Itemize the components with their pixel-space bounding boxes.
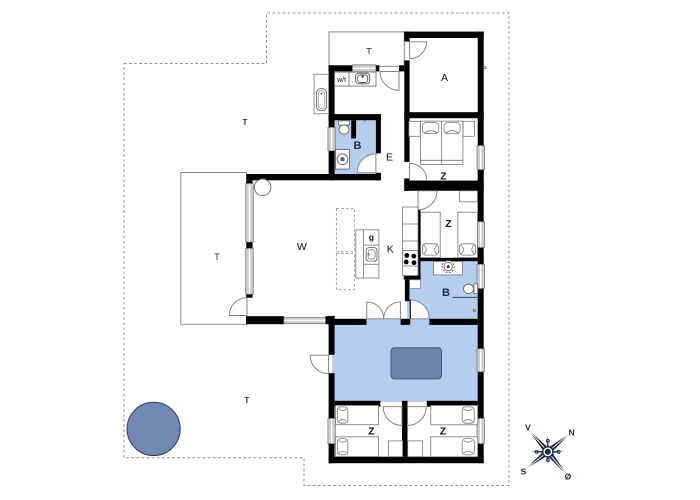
svg-text:Z: Z bbox=[368, 425, 375, 437]
svg-text:V: V bbox=[525, 422, 531, 432]
svg-text:K: K bbox=[387, 244, 394, 256]
svg-text:A: A bbox=[441, 72, 448, 84]
svg-text:T: T bbox=[214, 252, 220, 262]
svg-text:B: B bbox=[442, 287, 450, 299]
svg-text:T: T bbox=[244, 396, 249, 405]
svg-text:T: T bbox=[242, 118, 247, 127]
svg-text:W: W bbox=[297, 241, 307, 253]
svg-text:S: S bbox=[521, 466, 527, 476]
svg-text:B: B bbox=[354, 140, 362, 152]
svg-text:N: N bbox=[569, 427, 575, 437]
svg-text:Ø: Ø bbox=[565, 472, 572, 482]
svg-text:Z: Z bbox=[440, 171, 447, 183]
svg-text:T: T bbox=[366, 47, 372, 58]
svg-text:Z: Z bbox=[445, 218, 452, 230]
svg-text:g: g bbox=[369, 232, 374, 242]
svg-text:w/t: w/t bbox=[336, 77, 346, 84]
svg-text:E: E bbox=[386, 152, 393, 164]
svg-text:Z: Z bbox=[440, 425, 447, 437]
